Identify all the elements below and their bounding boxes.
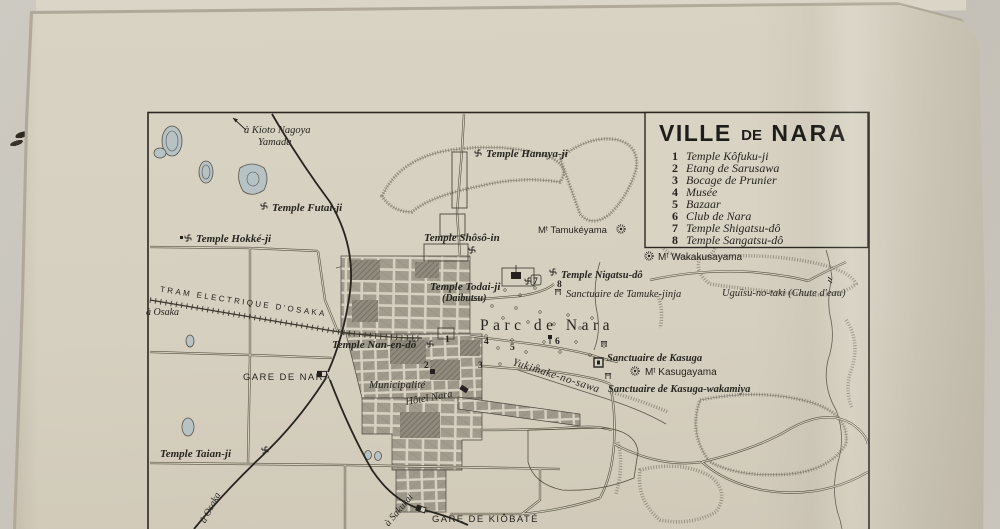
mountain-sun-icon xyxy=(645,252,652,259)
manji-icon xyxy=(261,203,267,209)
manji-icon xyxy=(525,278,531,284)
label-sanctuaire-kasuga: Sanctuaire de Kasuga xyxy=(607,353,702,364)
title-box: VILLE DE NARA 1 Temple Kôfuku-ji 2 Etang… xyxy=(645,113,868,248)
club-lantern-icon xyxy=(548,335,552,344)
field-outline xyxy=(528,428,638,490)
label-tram-electrique: TRAM ELECTRIQUE D'OSAKA xyxy=(159,285,327,319)
label-temple-hokkeji: Temple Hokké-ji xyxy=(196,233,272,245)
label-uguisu-no-taki: Uguïsu-no-taki (Chute d'eau) xyxy=(722,288,846,299)
label-municipalite: Municipalité xyxy=(368,379,426,391)
municipality-icon xyxy=(430,369,435,374)
marker-6: 6 xyxy=(555,337,560,347)
photo-of-map: VILLE DE NARA 1 Temple Kôfuku-ji 2 Etang… xyxy=(0,0,1000,529)
label-temple-futaiji: Temple Futai-ji xyxy=(272,202,343,214)
label-yukimake-no-sawa: Yukimake-no-sawa xyxy=(511,356,601,395)
manji-icon xyxy=(550,269,556,275)
marker-2: 2 xyxy=(424,361,429,371)
label-temple-shosoin: Temple Shôsô-in xyxy=(424,232,500,244)
label-a-osaka-west: à Osaka xyxy=(146,307,179,318)
marker-3: 3 xyxy=(478,361,483,371)
label-temple-nanendo: Temple Nan-en-dô xyxy=(332,339,417,351)
label-gare-de-kiobate: GARE DE KIÔBATÉ xyxy=(432,514,539,525)
marker-5: 5 xyxy=(510,343,515,353)
label-sanctuaire-wakamiya: Sanctuaire de Kasuga-wakamiya xyxy=(608,384,750,395)
temple-building-icon xyxy=(180,236,183,239)
kasuga-shrine-icon xyxy=(594,358,603,367)
manji-icon xyxy=(185,235,191,241)
label-to-kyoto: à Kioto Nagoya xyxy=(244,125,311,136)
marker-4: 4 xyxy=(484,337,489,347)
marker-7: 7 xyxy=(533,277,538,287)
label-parc-de-nara: Parc de Nara xyxy=(480,317,614,334)
label-temple-todaiji: Temple Todai-ji xyxy=(430,281,501,293)
manji-icon xyxy=(475,150,481,156)
label-sanctuaire-tamuke: Sanctuaire de Tamuke-jinja xyxy=(566,289,681,300)
label-mt-tamukeyama: Mᵗ Tamukéyama xyxy=(538,225,608,236)
legend-label: Temple Sangatsu-dô xyxy=(686,233,783,247)
torii-icon xyxy=(601,341,607,347)
label-to-kyoto-2: Yamada xyxy=(258,137,291,148)
nara-map: VILLE DE NARA 1 Temple Kôfuku-ji 2 Etang… xyxy=(14,4,987,529)
torii-icon xyxy=(555,289,561,295)
label-temple-todaiji-2: (Daibutsu) xyxy=(442,293,486,304)
label-gare-de-nara: GARE DE NARA xyxy=(243,372,332,383)
manji-icon xyxy=(469,247,475,253)
mountain-sun-icon xyxy=(631,367,638,374)
label-mt-kasugayama: Mᵗ Kasugayama xyxy=(645,367,717,378)
waterfall-icon xyxy=(828,277,832,283)
label-temple-hannyaji: Temple Hannya-ji xyxy=(486,148,569,160)
torii-icon xyxy=(605,373,611,379)
marker-8: 8 xyxy=(557,280,562,290)
label-temple-nigatsudo: Temple Nigatsu-dô xyxy=(561,270,643,281)
label-a-osaka-south: à Osaka xyxy=(198,491,223,525)
daibutsu-hall-icon xyxy=(511,272,521,279)
map-paper-page: VILLE DE NARA 1 Temple Kôfuku-ji 2 Etang… xyxy=(14,4,987,529)
legend-num: 8 xyxy=(672,233,678,247)
marker-1: 1 xyxy=(445,335,450,345)
railway-to-kyoto xyxy=(272,114,351,372)
label-mt-wakakusayama: Mᵗ Wakakusayama xyxy=(658,252,743,263)
label-temple-taianji: Temple Taian-ji xyxy=(160,448,232,460)
mountain-sun-icon xyxy=(617,225,624,232)
